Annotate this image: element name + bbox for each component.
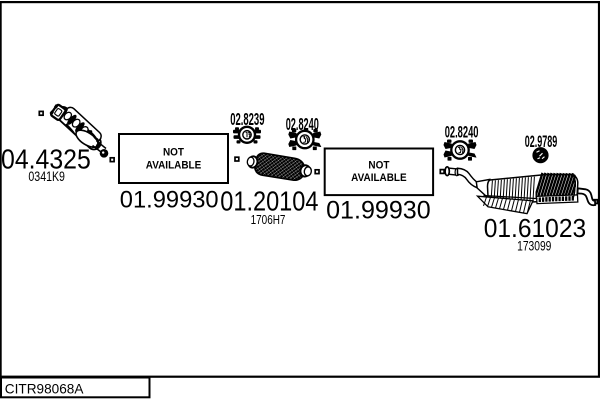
svg-text:CITR98068A: CITR98068A	[5, 381, 85, 396]
svg-text:173099: 173099	[517, 238, 551, 254]
svg-text:AVAILABLE: AVAILABLE	[146, 159, 202, 172]
svg-text:01.99930: 01.99930	[326, 198, 431, 225]
svg-text:AVAILABLE: AVAILABLE	[351, 171, 407, 184]
svg-text:NOT: NOT	[368, 159, 390, 172]
svg-text:0341K9: 0341K9	[28, 169, 65, 185]
svg-text:02.8240: 02.8240	[445, 123, 479, 142]
svg-text:NOT: NOT	[163, 146, 185, 159]
svg-text:01.99930: 01.99930	[120, 187, 219, 213]
svg-text:1706H7: 1706H7	[251, 213, 286, 228]
